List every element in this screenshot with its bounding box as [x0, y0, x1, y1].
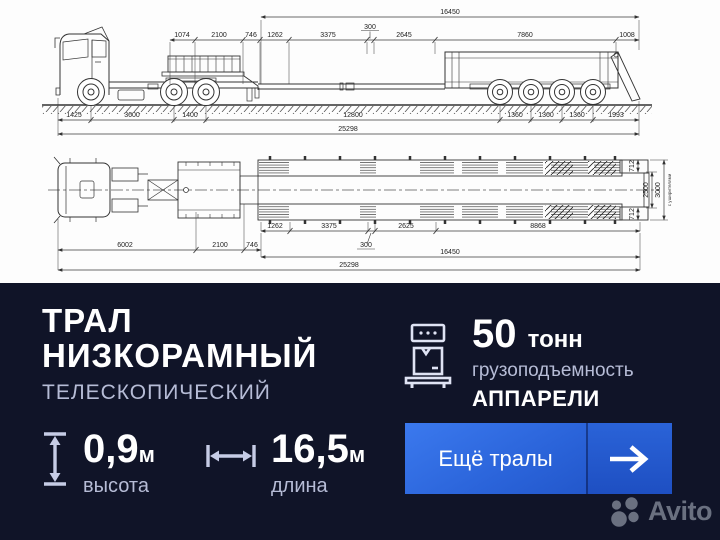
height-arrow-icon — [42, 431, 68, 487]
dim-label: 2645 — [396, 32, 412, 39]
dim-label: 16450 — [440, 249, 460, 256]
dim-label: 746 — [246, 242, 258, 249]
dim-label: 300 — [364, 24, 376, 31]
height-unit: м — [139, 442, 155, 467]
title-line-1: ТРАЛ — [42, 303, 317, 338]
length-label: длина — [271, 475, 365, 498]
dim-label: 1262 — [267, 32, 283, 39]
telescopic-rails — [258, 84, 445, 89]
dim-label: 1074 — [174, 32, 190, 39]
dim-label: 1262 — [267, 223, 283, 230]
height-value-line: 0,9м — [83, 431, 155, 473]
side-dim-labels: 16450 1074 2100 746 1262 3375 300 2645 7… — [66, 9, 635, 133]
dim-label: 1008 — [619, 32, 635, 39]
more-trailers-button[interactable]: Ещё тралы — [405, 423, 672, 494]
capacity-label: грузоподъемность — [472, 360, 634, 382]
dim-label: 2100 — [211, 32, 227, 39]
dim-label: 8868 — [530, 223, 546, 230]
dim-label: 1425 — [66, 112, 82, 119]
dim-label: 300 — [360, 242, 372, 249]
capacity-text: 50 тонн грузоподъемность АППАРЕЛИ — [472, 315, 634, 412]
dim-label: 712 — [629, 160, 636, 172]
length-value: 16,5 — [271, 427, 349, 471]
dim-label: 3600 — [124, 112, 140, 119]
dim-label: 1360 — [507, 112, 523, 119]
trailer-blueprint: 16450 1074 2100 746 1262 3375 300 2645 7… — [0, 0, 720, 283]
dim-label: 3375 — [321, 223, 337, 230]
capacity-extra: АППАРЕЛИ — [472, 386, 634, 412]
dim-label: 25298 — [339, 262, 359, 269]
plan-view — [48, 156, 660, 224]
dim-label: 3000 — [655, 182, 662, 198]
cta-arrow-section[interactable] — [586, 423, 672, 494]
technical-drawing-area: 16450 1074 2100 746 1262 3375 300 2645 7… — [0, 0, 720, 283]
capacity-value: 50 — [472, 312, 517, 356]
dim-label: 16450 — [440, 9, 460, 16]
dim-label: 1360 — [538, 112, 554, 119]
capacity-value-line: 50 тонн — [472, 315, 634, 359]
wideners-note: с уширителями — [667, 173, 672, 206]
dim-label: 1993 — [608, 112, 624, 119]
ad-creative: 16450 1074 2100 746 1262 3375 300 2645 7… — [0, 0, 720, 540]
dim-label: 2100 — [212, 242, 228, 249]
avito-dots-icon — [610, 497, 644, 527]
more-trailers-button-label: Ещё тралы — [405, 423, 586, 494]
capacity-block: 50 тонн грузоподъемность АППАРЕЛИ — [400, 315, 634, 412]
length-value-line: 16,5м — [271, 431, 365, 473]
dim-label: 746 — [245, 32, 257, 39]
dim-label: 1400 — [182, 112, 198, 119]
height-label: высота — [83, 475, 155, 498]
height-spec-text: 0,9м высота — [83, 431, 155, 498]
height-value: 0,9 — [83, 427, 139, 471]
dim-label: 2625 — [398, 223, 414, 230]
length-arrow-icon — [206, 443, 256, 469]
subtitle: ТЕЛЕСКОПИЧЕСКИЙ — [42, 381, 317, 405]
length-spec-text: 16,5м длина — [271, 431, 365, 498]
dim-label: 25298 — [338, 126, 358, 133]
arrow-right-icon — [608, 444, 652, 474]
dim-label: 12800 — [343, 112, 363, 119]
length-spec: 16,5м длина — [206, 431, 365, 498]
length-unit: м — [349, 442, 365, 467]
dim-label: 3375 — [320, 32, 336, 39]
brand-name: Avito — [648, 496, 712, 527]
title-line-2: НИЗКОРАМНЫЙ — [42, 338, 317, 373]
info-panel: ТРАЛ НИЗКОРАМНЫЙ ТЕЛЕСКОПИЧЕСКИЙ — [0, 283, 720, 540]
brand-logo: Avito — [610, 496, 712, 527]
title-block: ТРАЛ НИЗКОРАМНЫЙ ТЕЛЕСКОПИЧЕСКИЙ — [42, 303, 317, 405]
dim-label: 1360 — [569, 112, 585, 119]
dim-label: 2500 — [643, 182, 650, 198]
kingpin — [184, 188, 189, 193]
weight-scale-icon — [400, 321, 456, 391]
dim-label: 7860 — [517, 32, 533, 39]
wheels-side — [78, 79, 606, 106]
dim-label: 712 — [629, 208, 636, 220]
capacity-unit: тонн — [528, 326, 583, 353]
height-spec: 0,9м высота — [42, 431, 155, 498]
dim-label: 6002 — [117, 242, 133, 249]
rear-ramp — [611, 52, 640, 101]
